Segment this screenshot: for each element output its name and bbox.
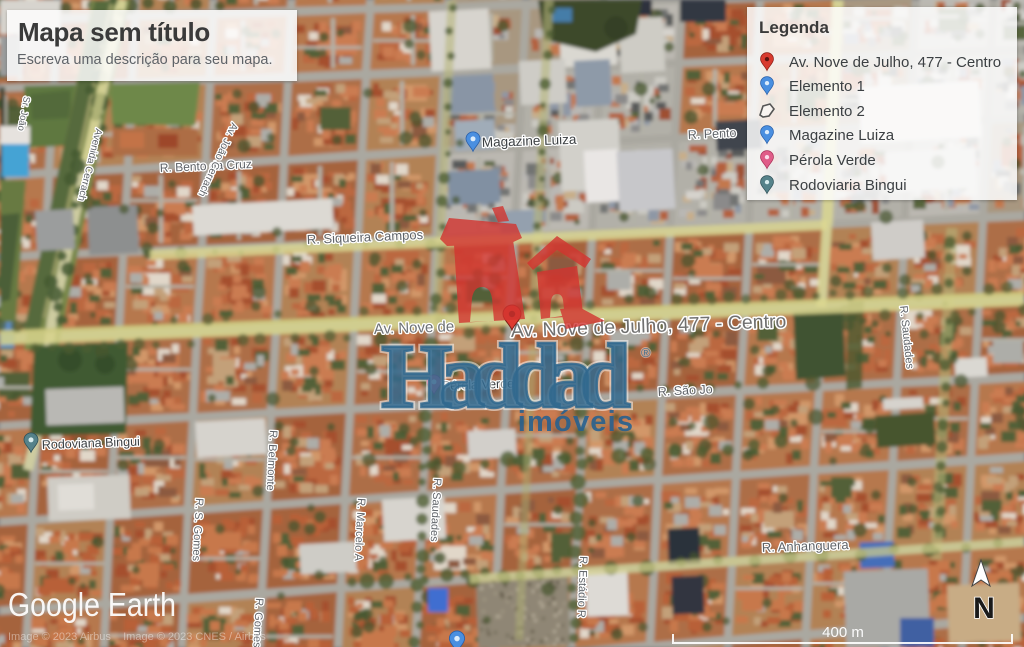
- svg-text:®: ®: [641, 345, 651, 360]
- svg-text:R. Pento: R. Pento: [688, 126, 737, 142]
- svg-text:R. Estádio R: R. Estádio R: [575, 556, 589, 618]
- svg-text:Av. Nove de Julho, 477 - Centr: Av. Nove de Julho, 477 - Centro: [789, 54, 1001, 71]
- svg-text:Pérola Verde: Pérola Verde: [789, 152, 876, 169]
- svg-text:400 m: 400 m: [822, 624, 864, 641]
- svg-text:Magazine Luiza: Magazine Luiza: [789, 127, 895, 144]
- svg-text:Elemento 1: Elemento 1: [789, 78, 865, 95]
- svg-text:Elemento 2: Elemento 2: [789, 103, 865, 120]
- svg-text:R. Anhanguera: R. Anhanguera: [762, 537, 850, 555]
- svg-text:N: N: [973, 592, 995, 625]
- svg-text:Google Earth: Google Earth: [8, 586, 176, 623]
- svg-text:imóveis: imóveis: [518, 406, 634, 438]
- svg-text:Image © 2023 Airbus Image ©: Image © 2023 Airbus Image © 2023 CNES / …: [8, 631, 266, 643]
- svg-text:Rodoviaria Bingui: Rodoviaria Bingui: [789, 177, 907, 194]
- svg-text:R. São Jo: R. São Jo: [657, 382, 713, 399]
